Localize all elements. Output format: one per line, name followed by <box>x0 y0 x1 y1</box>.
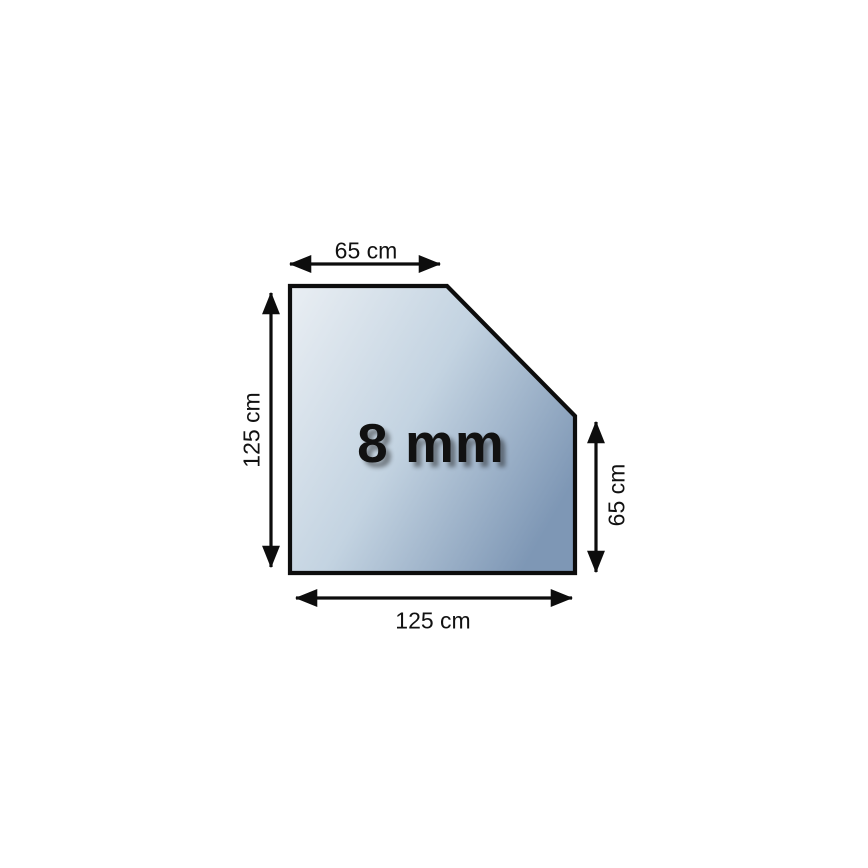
top-dimension-label: 65 cm <box>335 240 398 263</box>
right-dimension-label: 65 cm <box>606 464 629 527</box>
diagram-canvas: 65 cm 125 cm 65 cm 125 cm 8 mm <box>0 0 868 868</box>
bottom-dimension-label: 125 cm <box>395 610 470 633</box>
thickness-label: 8 mm <box>357 411 505 475</box>
left-dimension-label: 125 cm <box>241 392 264 467</box>
